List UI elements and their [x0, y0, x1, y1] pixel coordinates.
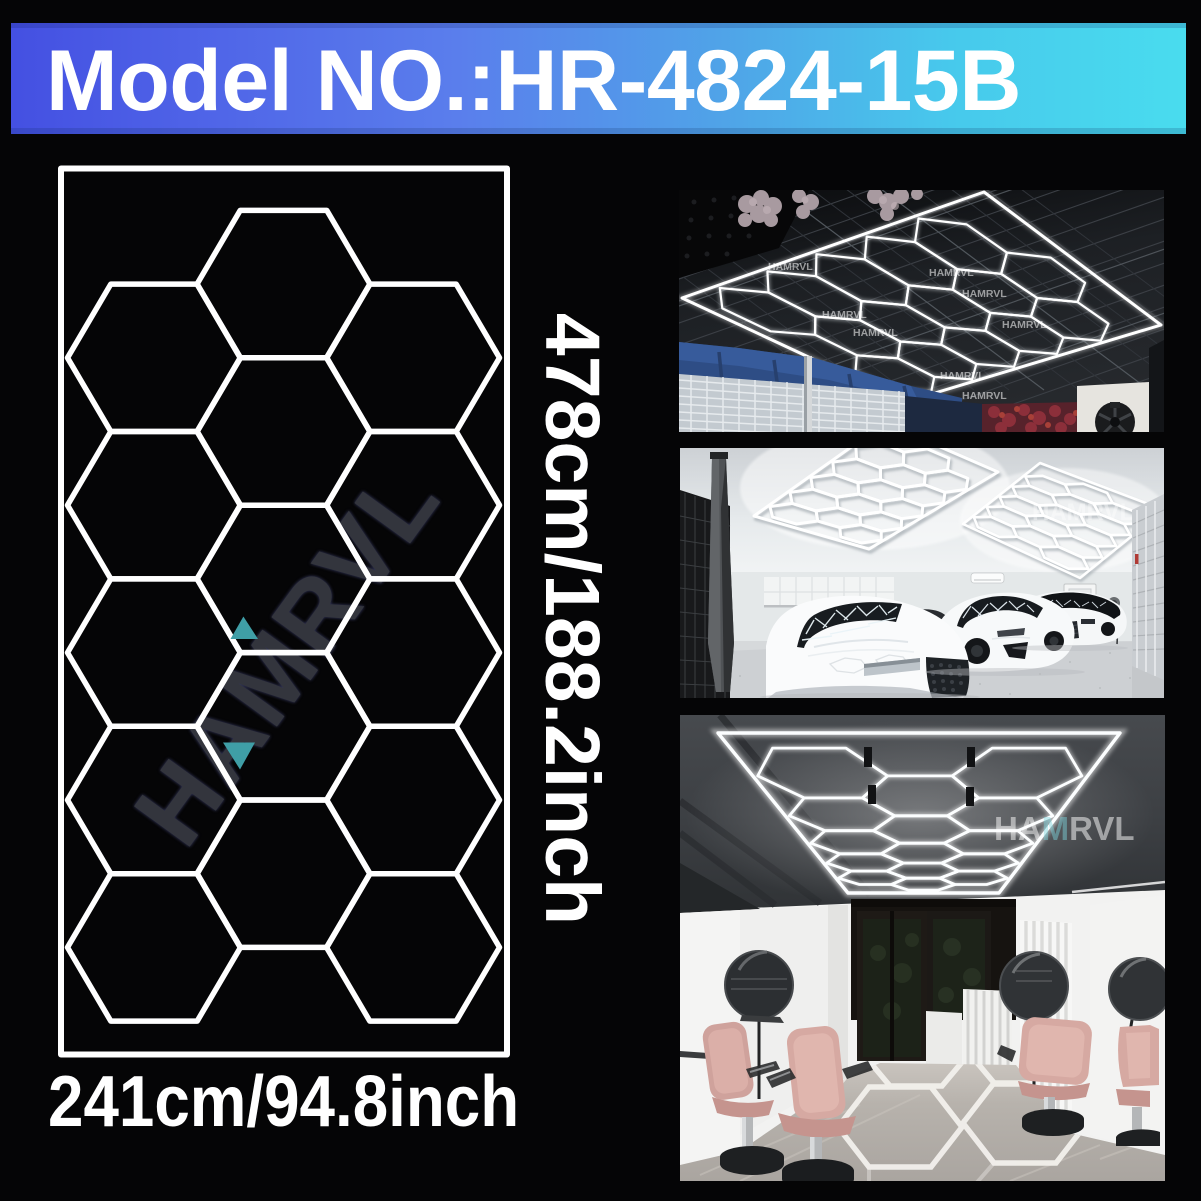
- svg-text:HAMRVL: HAMRVL: [1032, 499, 1134, 526]
- svg-text:HAMRVL: HAMRVL: [822, 309, 867, 321]
- svg-text:HAMRVL: HAMRVL: [929, 267, 974, 279]
- svg-text:HAMRVL: HAMRVL: [1002, 319, 1047, 331]
- svg-text:HAMRVL: HAMRVL: [940, 370, 985, 382]
- svg-text:HAMRVL: HAMRVL: [994, 810, 1135, 847]
- svg-text:HAMRVL: HAMRVL: [768, 261, 813, 273]
- svg-text:HAMRVL: HAMRVL: [853, 327, 898, 339]
- svg-text:HAMRVL: HAMRVL: [962, 288, 1007, 300]
- svg-text:HAMRVL: HAMRVL: [962, 390, 1007, 402]
